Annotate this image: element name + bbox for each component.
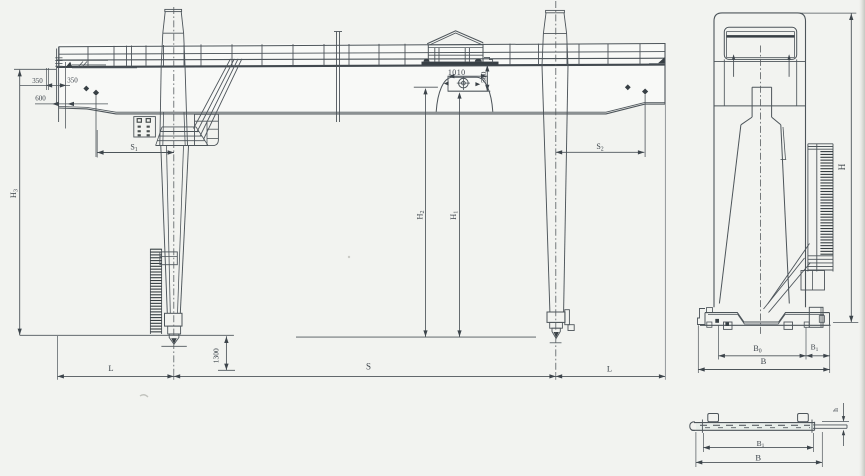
svg-text:B: B: [755, 453, 761, 463]
svg-text:350: 350: [32, 77, 43, 85]
svg-text:L: L: [607, 364, 612, 374]
svg-text:500: 500: [479, 71, 488, 83]
svg-text:1300: 1300: [212, 348, 221, 363]
svg-text:S: S: [366, 362, 371, 372]
svg-text:H: H: [837, 163, 847, 170]
svg-text:h: h: [831, 408, 840, 412]
svg-text:L: L: [108, 363, 113, 373]
svg-text:350: 350: [67, 77, 78, 85]
svg-text:B: B: [761, 356, 767, 366]
svg-text:600: 600: [35, 95, 46, 103]
